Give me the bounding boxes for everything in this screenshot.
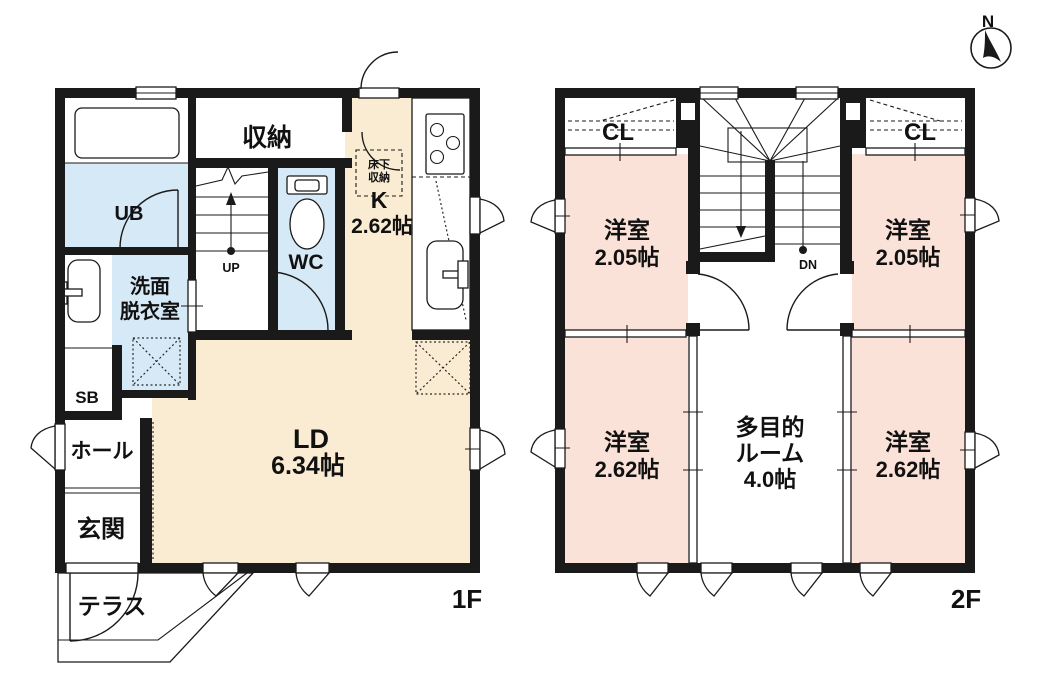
- entrance-door-gap: [66, 563, 138, 573]
- stairs-1f: [196, 167, 268, 255]
- window-top: [136, 87, 176, 99]
- toilet-icon: [287, 176, 327, 249]
- kitchen-counter: [412, 98, 470, 330]
- door-kitchen-back: [361, 52, 398, 89]
- label-bedroom-bl-size: 2.62帖: [595, 457, 660, 482]
- label-bedroom-bl: 洋室: [604, 429, 650, 455]
- label-kitchen: K: [371, 187, 388, 213]
- north-compass-icon: N: [971, 12, 1011, 68]
- label-entrance: 玄関: [77, 515, 125, 543]
- window-ld-right: [465, 428, 505, 470]
- window-bottom-2: [296, 563, 329, 596]
- label-underfloor-2: 収納: [368, 170, 390, 184]
- floor-plan-2f: CL CL 洋室 2.05帖 洋室 2.05帖 洋室 2.62帖 洋室 2.62…: [531, 87, 999, 614]
- sink-icon: [427, 241, 468, 309]
- label-bedroom-br: 洋室: [885, 429, 931, 455]
- label-bedroom-br-size: 2.62帖: [876, 457, 941, 482]
- label-bedroom-tl-size: 2.05帖: [595, 245, 660, 270]
- window-bedroom-tr: [960, 198, 999, 232]
- label-wc: WC: [289, 251, 324, 274]
- door-bedroom-tr: [787, 274, 843, 330]
- label-living-size: 6.34帖: [271, 452, 345, 480]
- label-hall: ホール: [71, 440, 134, 463]
- kitchen-back-door-leaf: [359, 88, 399, 98]
- label-kitchen-size: 2.62帖: [351, 215, 413, 238]
- label-floor1: 1F: [452, 584, 482, 614]
- label-storage: 収納: [242, 123, 292, 152]
- compass-north-label: N: [982, 12, 994, 31]
- bathtub-icon: [75, 108, 179, 158]
- label-multi-2: ルーム: [736, 440, 804, 466]
- label-shoe-box: SB: [75, 388, 99, 407]
- floor-plan-page: 収納 UB 洗面 脱衣室 WC UP K 2.62帖 床下 収納 SB ホール …: [0, 0, 1048, 697]
- label-terrace: テラス: [78, 593, 147, 619]
- label-bedroom-tr: 洋室: [885, 217, 931, 243]
- label-dn: DN: [799, 258, 817, 272]
- window-hall-left: [31, 424, 65, 470]
- window-stair-top-2: [796, 87, 838, 99]
- stove-icon: [426, 114, 464, 174]
- window-bedroom-tl: [531, 199, 570, 233]
- label-floor2: 2F: [951, 584, 981, 614]
- label-bedroom-tl: 洋室: [604, 217, 650, 243]
- window-bedroom-bl: [531, 429, 570, 468]
- door-bedroom-tl: [693, 274, 749, 330]
- label-living: LD: [293, 424, 329, 454]
- window-bedroom-br: [960, 432, 999, 469]
- label-underfloor-1: 床下: [368, 157, 390, 171]
- doors-2f: [693, 274, 843, 330]
- window-stair-top-1: [700, 87, 738, 99]
- washbasin-icon: [60, 260, 100, 322]
- floor-plan-1f: 収納 UB 洗面 脱衣室 WC UP K 2.62帖 床下 収納 SB ホール …: [31, 52, 505, 662]
- window-kitchen-right: [470, 197, 504, 234]
- label-closet-right: CL: [904, 119, 936, 146]
- label-washroom-1: 洗面: [130, 275, 170, 298]
- label-multi-size: 4.0帖: [744, 467, 797, 492]
- label-unit-bath: UB: [115, 203, 144, 225]
- label-closet-left: CL: [602, 119, 634, 146]
- label-multi-1: 多目的: [736, 414, 805, 440]
- label-up: UP: [222, 261, 239, 275]
- label-bedroom-tr-size: 2.05帖: [876, 245, 941, 270]
- label-washroom-2: 脱衣室: [120, 299, 180, 323]
